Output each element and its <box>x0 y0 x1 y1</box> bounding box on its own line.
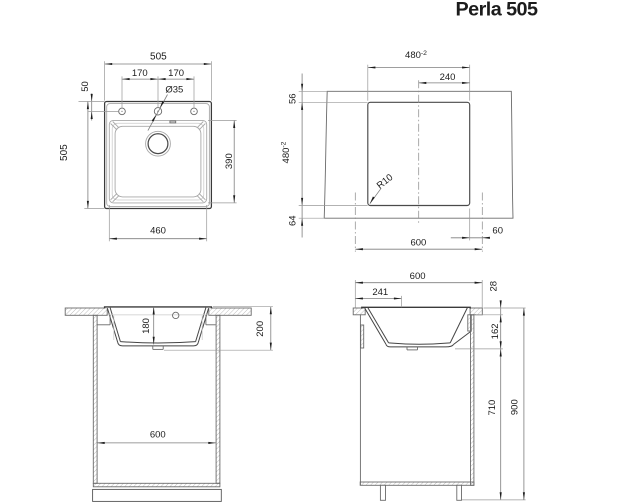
svg-text:50: 50 <box>80 81 91 92</box>
svg-text:900: 900 <box>509 399 520 415</box>
svg-text:240: 240 <box>440 72 456 83</box>
svg-text:241: 241 <box>372 287 388 298</box>
svg-text:56: 56 <box>287 93 298 104</box>
svg-text:200: 200 <box>255 321 266 337</box>
svg-text:710: 710 <box>487 400 498 416</box>
svg-text:180: 180 <box>141 318 152 334</box>
svg-text:64: 64 <box>287 215 298 226</box>
svg-text:505: 505 <box>150 52 167 63</box>
svg-text:600: 600 <box>150 430 166 441</box>
svg-text:170: 170 <box>168 68 184 79</box>
svg-text:600: 600 <box>410 271 426 282</box>
svg-text:460: 460 <box>150 225 166 236</box>
svg-text:170: 170 <box>132 68 148 79</box>
svg-text:60: 60 <box>492 225 503 236</box>
svg-text:505: 505 <box>59 144 70 161</box>
svg-text:162: 162 <box>490 323 501 339</box>
svg-text:Ø35: Ø35 <box>165 84 183 95</box>
svg-text:390: 390 <box>224 153 235 169</box>
svg-text:28: 28 <box>488 281 499 292</box>
svg-text:Perla 505: Perla 505 <box>456 0 538 21</box>
svg-text:600: 600 <box>410 238 426 249</box>
